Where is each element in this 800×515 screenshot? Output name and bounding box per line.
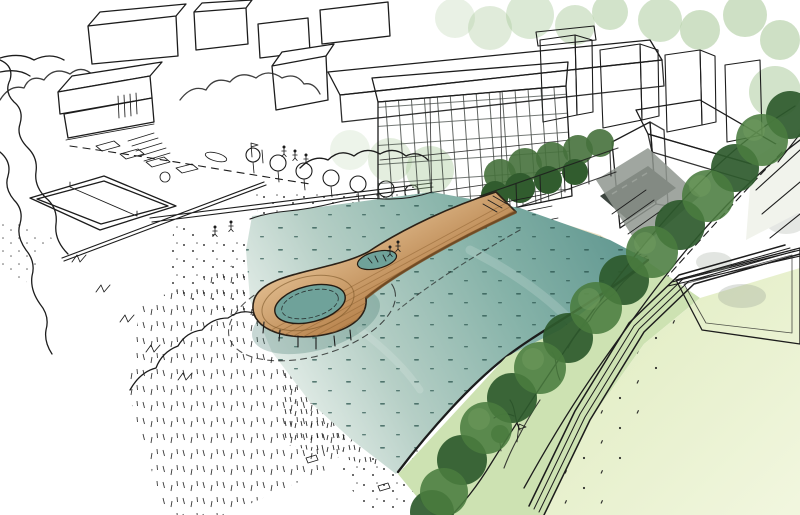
stepped-terrace-building [58,62,162,140]
tower-sides [552,35,716,125]
concept-sketch [0,0,800,515]
sketch-canvas [0,0,800,515]
beach-volleyball-court [0,176,176,286]
